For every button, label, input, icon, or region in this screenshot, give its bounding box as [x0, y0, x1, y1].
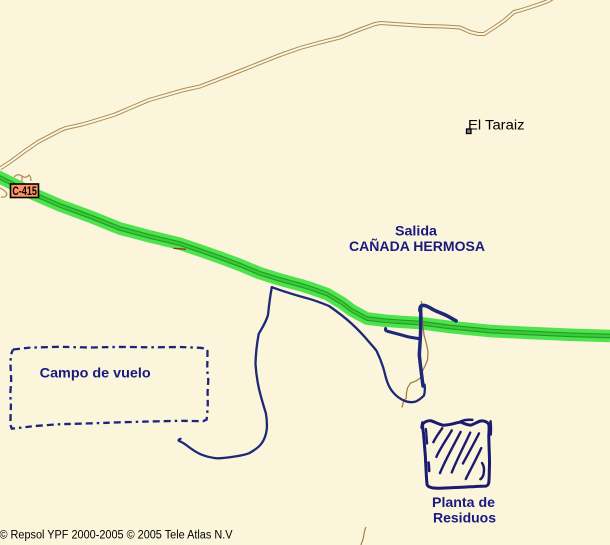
svg-text:© Repsol YPF 2000-2005 © 2005: © Repsol YPF 2000-2005 © 2005 Tele Atlas… — [0, 530, 233, 542]
svg-text:Salida: Salida — [395, 224, 438, 239]
svg-text:CAÑADA HERMOSA: CAÑADA HERMOSA — [349, 239, 485, 254]
svg-text:Residuos: Residuos — [433, 509, 496, 525]
svg-text:Planta de: Planta de — [432, 494, 495, 510]
svg-text:El Taraiz: El Taraiz — [468, 118, 525, 133]
svg-text:Campo de vuelo: Campo de vuelo — [40, 366, 151, 381]
svg-text:C-415: C-415 — [12, 186, 37, 198]
